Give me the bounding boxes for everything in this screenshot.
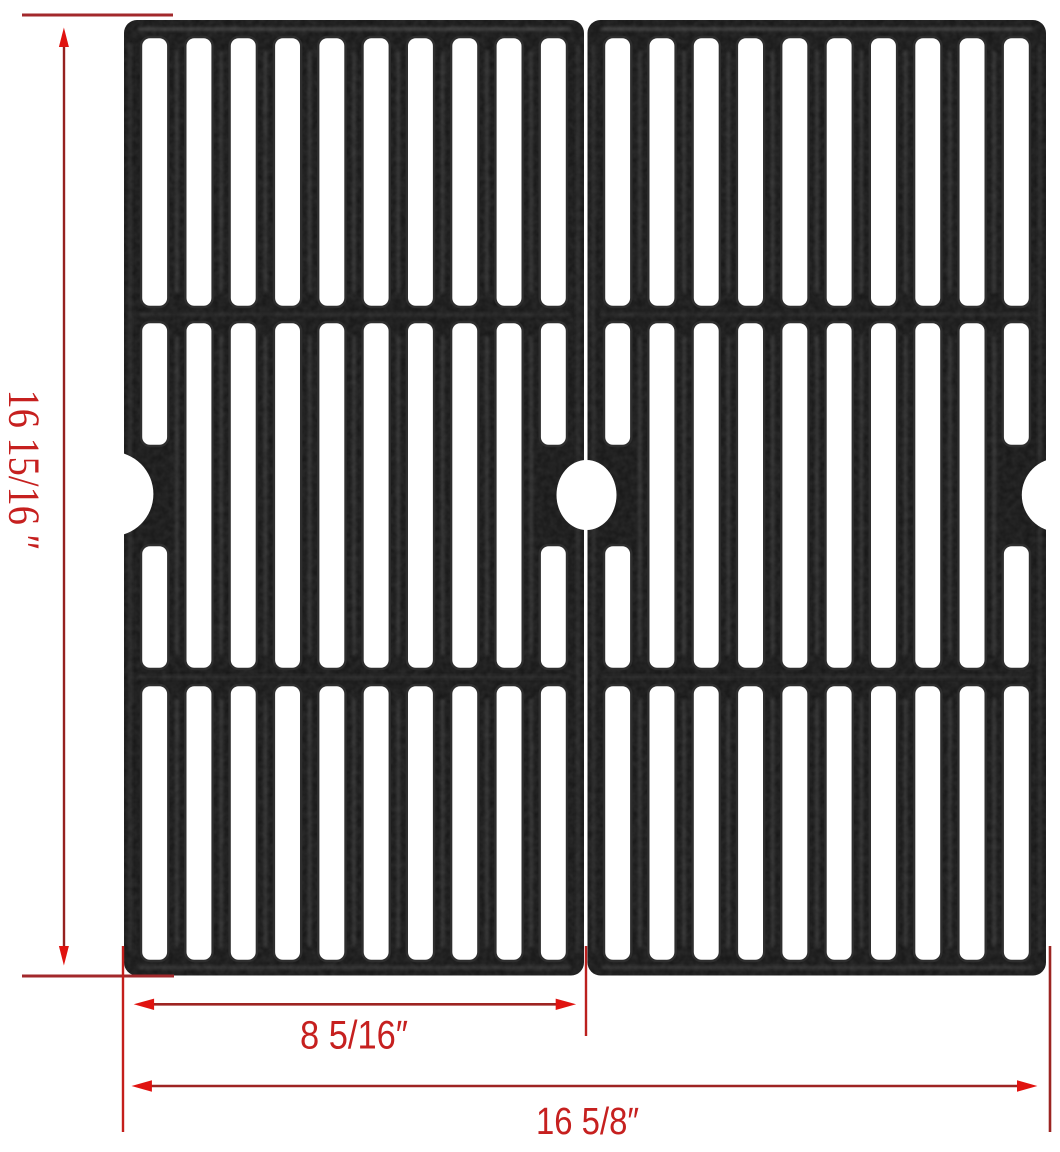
- svg-text:16 15/16 ″: 16 15/16 ″: [0, 390, 48, 551]
- svg-text:16 5/8″: 16 5/8″: [536, 1101, 639, 1143]
- svg-text:8 5/16″: 8 5/16″: [300, 1014, 408, 1058]
